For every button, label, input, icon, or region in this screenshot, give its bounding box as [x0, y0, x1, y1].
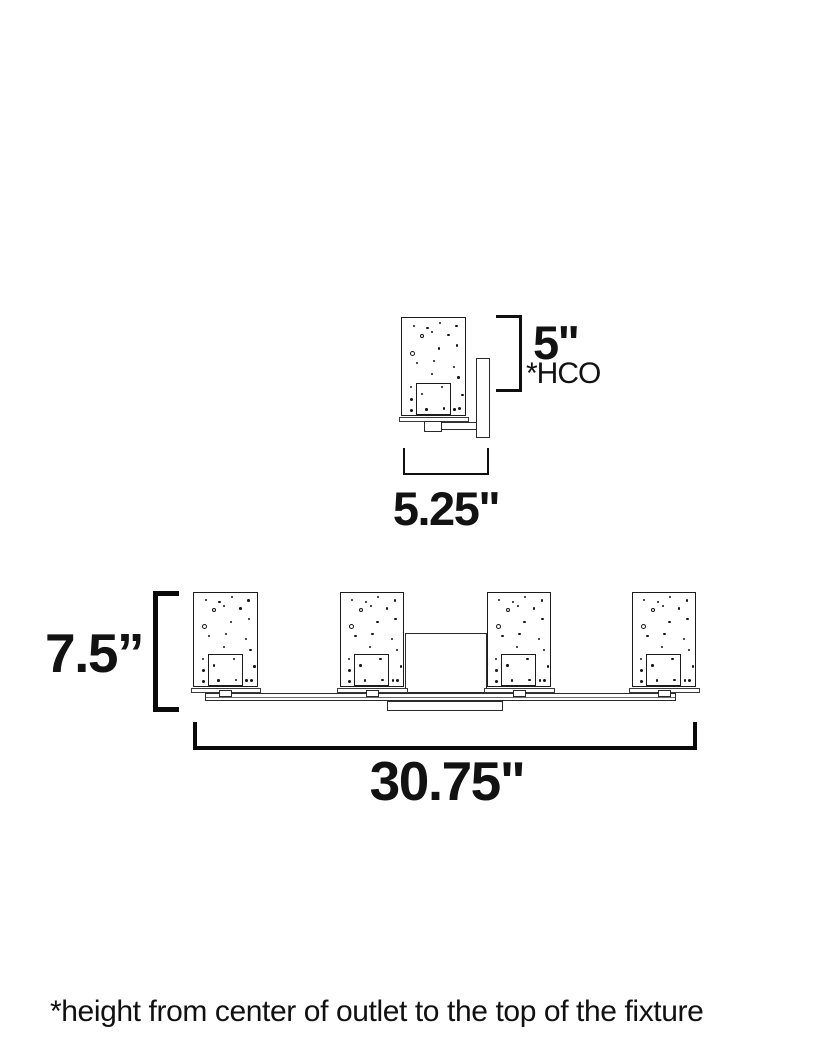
socket-knob	[424, 421, 442, 432]
bar-bevel-line	[206, 697, 675, 698]
glass-shade	[193, 592, 258, 688]
hco-note-label: *HCO	[526, 357, 600, 391]
glass-speckle	[420, 334, 424, 338]
glass-speckle	[533, 607, 536, 610]
glass-speckle	[678, 607, 681, 610]
glass-speckle	[426, 327, 429, 330]
socket-box	[208, 654, 243, 686]
width-dimension-label: 5.25"	[346, 481, 546, 536]
socket-box	[354, 654, 389, 686]
glass-speckle	[376, 621, 379, 624]
glass-speckle	[394, 618, 397, 621]
glass-speckle	[431, 373, 433, 375]
socket-connector	[658, 690, 671, 697]
glass-speckle	[640, 669, 643, 672]
glass-speckle	[688, 679, 691, 682]
glass-speckle	[218, 601, 221, 604]
socket-connector	[366, 690, 379, 697]
socket-box	[501, 654, 536, 686]
glass-speckle	[498, 599, 500, 601]
height-dimension-bracket	[153, 591, 179, 712]
glass-speckle	[543, 679, 546, 682]
glass-shade	[401, 317, 466, 416]
glass-shade	[632, 592, 697, 688]
glass-speckle	[640, 680, 643, 683]
glass-speckle	[686, 618, 689, 621]
socket-box	[646, 654, 681, 686]
glass-speckle	[202, 669, 205, 672]
glass-speckle	[662, 605, 664, 607]
glass-speckle	[661, 646, 663, 648]
glass-speckle	[684, 679, 687, 682]
mounting-canopy	[387, 701, 503, 711]
glass-speckle	[431, 331, 433, 333]
glass-speckle	[239, 607, 242, 610]
glass-speckle	[657, 601, 660, 604]
glass-speckle	[396, 649, 399, 652]
glass-speckle	[541, 599, 544, 602]
glass-speckle	[539, 679, 542, 682]
glass-speckle	[245, 679, 248, 682]
glass-speckle	[348, 658, 350, 660]
glass-speckle	[495, 680, 498, 683]
glass-shade	[487, 592, 552, 688]
glass-speckle	[410, 351, 415, 356]
glass-speckle	[669, 596, 671, 598]
glass-speckle	[523, 621, 526, 624]
fixture-dimension-diagram: 5" *HCO 5.25" 7.5” 30.75" *height from c…	[0, 0, 835, 1042]
glass-speckle	[400, 665, 403, 668]
glass-speckle	[410, 398, 413, 401]
mounting-arm	[440, 422, 477, 430]
glass-speckle	[458, 407, 461, 410]
height-dimension-bracket	[496, 315, 522, 392]
glass-speckle	[651, 608, 655, 612]
glass-speckle	[349, 624, 354, 629]
glass-speckle	[369, 646, 371, 648]
glass-speckle	[208, 635, 211, 638]
glass-speckle	[245, 638, 247, 640]
width-dimension-label: 30.75"	[327, 749, 567, 813]
glass-speckle	[517, 605, 519, 607]
glass-speckle	[668, 621, 671, 624]
glass-shade	[340, 592, 405, 688]
glass-speckle	[524, 596, 526, 598]
wall-backplate	[405, 633, 487, 693]
glass-speckle	[643, 599, 645, 601]
glass-speckle	[202, 624, 207, 629]
glass-speckle	[223, 605, 225, 607]
socket-connector	[513, 690, 526, 697]
glass-speckle	[354, 635, 357, 638]
fixture-bar	[205, 693, 676, 702]
glass-speckle	[396, 679, 399, 682]
glass-speckle	[247, 599, 250, 602]
glass-speckle	[683, 638, 685, 640]
glass-speckle	[439, 322, 441, 324]
glass-speckle	[433, 360, 436, 363]
width-dimension-bracket	[193, 722, 697, 750]
glass-speckle	[212, 608, 216, 612]
glass-speckle	[518, 633, 521, 636]
glass-speckle	[225, 633, 228, 636]
glass-speckle	[348, 669, 351, 672]
glass-speckle	[205, 599, 207, 601]
glass-speckle	[394, 599, 397, 602]
glass-speckle	[646, 635, 649, 638]
glass-speckle	[391, 638, 393, 640]
glass-speckle	[640, 658, 642, 660]
glass-speckle	[231, 596, 233, 598]
glass-speckle	[371, 633, 374, 636]
glass-speckle	[250, 679, 253, 682]
glass-speckle	[202, 658, 204, 660]
glass-speckle	[663, 633, 666, 636]
glass-speckle	[416, 362, 419, 365]
glass-speckle	[249, 649, 252, 652]
glass-speckle	[365, 601, 368, 604]
glass-speckle	[461, 394, 464, 397]
wall-backplate	[476, 358, 490, 438]
glass-speckle	[348, 680, 351, 683]
socket-box	[416, 383, 451, 415]
glass-speckle	[457, 376, 460, 379]
glass-speckle	[392, 679, 395, 682]
glass-speckle	[410, 386, 412, 388]
glass-speckle	[359, 608, 363, 612]
glass-speckle	[370, 605, 372, 607]
glass-speckle	[543, 649, 546, 652]
glass-speckle	[541, 618, 544, 621]
glass-speckle	[413, 325, 415, 327]
glass-speckle	[692, 665, 695, 668]
height-dimension-label: 7.5”	[23, 621, 143, 685]
glass-speckle	[495, 669, 498, 672]
glass-speckle	[453, 408, 456, 411]
glass-speckle	[456, 344, 459, 347]
glass-speckle	[512, 601, 515, 604]
footnote-text: *height from center of outlet to the top…	[50, 995, 703, 1029]
glass-speckle	[641, 624, 646, 629]
glass-speckle	[506, 608, 510, 612]
glass-speckle	[410, 409, 413, 412]
glass-speckle	[223, 646, 225, 648]
glass-speckle	[453, 366, 455, 368]
glass-speckle	[377, 596, 379, 598]
glass-speckle	[438, 347, 441, 350]
glass-speckle	[248, 618, 251, 621]
glass-speckle	[501, 635, 504, 638]
glass-speckle	[386, 607, 389, 610]
glass-speckle	[547, 665, 550, 668]
glass-speckle	[686, 599, 689, 602]
width-dimension-bracket	[403, 448, 489, 475]
glass-speckle	[447, 334, 450, 337]
glass-speckle	[495, 658, 497, 660]
glass-speckle	[538, 638, 540, 640]
glass-speckle	[688, 649, 691, 652]
glass-speckle	[202, 680, 205, 683]
glass-speckle	[351, 599, 353, 601]
socket-connector	[219, 690, 232, 697]
glass-speckle	[253, 665, 256, 668]
glass-speckle	[455, 325, 458, 328]
glass-speckle	[496, 624, 501, 629]
glass-speckle	[516, 646, 518, 648]
glass-speckle	[230, 621, 233, 624]
